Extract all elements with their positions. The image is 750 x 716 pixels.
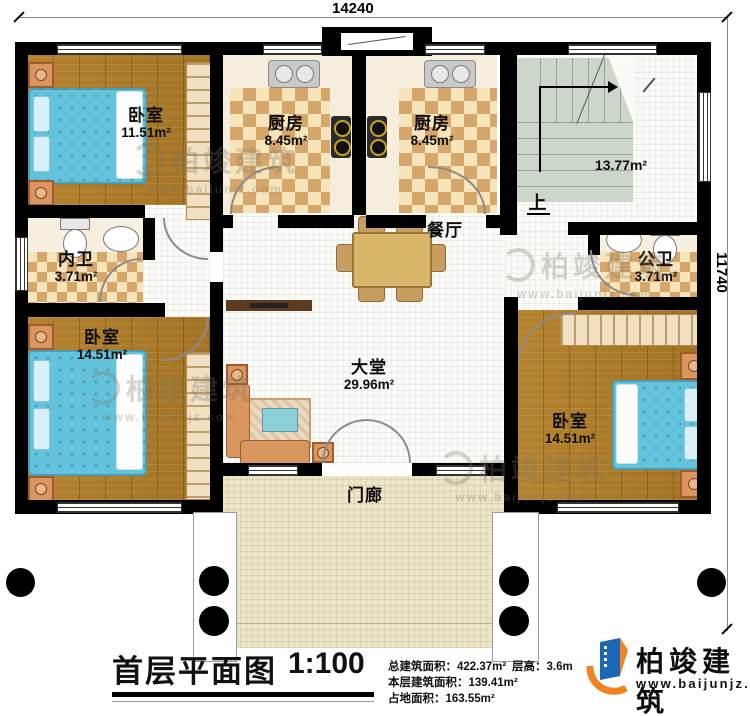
- bed-sheet-icon: [116, 354, 143, 470]
- pillow-icon: [33, 360, 50, 402]
- wall: [15, 303, 165, 317]
- wall: [578, 297, 711, 310]
- window: [248, 465, 298, 476]
- plan-scale: 1:100: [288, 647, 365, 681]
- porch-step-line: [222, 623, 508, 624]
- room-area: 14.51m²: [524, 431, 616, 446]
- wardrobe-icon: [186, 352, 212, 500]
- wardrobe-icon: [186, 62, 212, 220]
- wall: [210, 218, 223, 252]
- room-area: 8.45m²: [240, 133, 332, 148]
- floor-plan-canvas: 14240 11740: [0, 0, 750, 716]
- stair-guide-line: [540, 86, 610, 88]
- room-label-porch: 门廊: [322, 486, 408, 505]
- stair-guide-line: [539, 86, 541, 172]
- tv-icon: [250, 303, 288, 308]
- room-label-stair-hall: 13.77m²: [575, 158, 667, 174]
- room-area: 14.51m²: [56, 347, 148, 362]
- stat-floor-height: 层高：3.6m: [512, 658, 573, 674]
- room-name: 公卫: [616, 250, 696, 269]
- room-name: 内卫: [32, 250, 120, 269]
- top-dimension-label: 14240: [332, 0, 374, 17]
- side-table-icon: [226, 364, 248, 385]
- wall: [223, 215, 233, 228]
- room-name: 餐厅: [413, 221, 477, 240]
- title-underline-thin: [112, 701, 374, 702]
- room-area: 3.71m²: [616, 269, 696, 284]
- stove-icon: [331, 116, 351, 158]
- room-area: 29.96m²: [323, 377, 415, 392]
- bath-sink-icon: [103, 226, 139, 252]
- wall: [210, 282, 223, 512]
- room-name: 卧室: [524, 412, 616, 431]
- room-area: 8.45m²: [386, 133, 478, 148]
- room-label-bedroom-br: 卧室 14.51m²: [524, 412, 616, 446]
- room-label-hall: 大堂 29.96m²: [323, 358, 415, 392]
- company-logo-svg: [586, 636, 632, 696]
- window: [57, 502, 182, 513]
- wall: [278, 215, 354, 228]
- title-underline: [112, 692, 374, 697]
- column-icon: [499, 566, 529, 596]
- room-name: 门廊: [322, 486, 408, 505]
- room-label-dining: 餐厅: [413, 221, 477, 240]
- stat-total-area: 总建筑面积：422.37m²: [388, 658, 506, 674]
- room-label-inner-bath: 内卫 3.71m²: [32, 250, 120, 284]
- wall: [352, 55, 366, 215]
- stair-direction-arrow: [608, 81, 618, 93]
- column-icon: [697, 568, 726, 597]
- nightstand-icon: [28, 476, 54, 502]
- company-logo-website: www.baijunjz.com: [636, 676, 750, 691]
- room-label-kitchen-left: 厨房 8.45m²: [240, 114, 332, 148]
- window: [568, 44, 657, 55]
- window: [15, 237, 28, 291]
- room-name: 大堂: [323, 358, 415, 377]
- dining-table-icon: [352, 232, 432, 288]
- wall: [486, 215, 500, 228]
- stat-floor-area: 本层建筑面积：139.41m²: [388, 674, 518, 690]
- window: [425, 44, 485, 55]
- column-icon: [499, 606, 529, 636]
- kitchen-sink-icon: [268, 60, 320, 88]
- wall: [143, 218, 155, 260]
- room-name: 卧室: [100, 106, 192, 125]
- top-dimension-line: [20, 17, 728, 18]
- nightstand-icon: [28, 180, 54, 206]
- room-name: 卧室: [56, 328, 148, 347]
- window: [557, 502, 679, 513]
- window: [698, 92, 711, 182]
- wall: [500, 55, 517, 235]
- wall: [504, 297, 518, 513]
- column-icon: [199, 566, 229, 596]
- column-icon: [199, 606, 229, 636]
- wardrobe-icon: [560, 314, 702, 346]
- stair-up-label: 上: [523, 193, 553, 215]
- plan-title: 首层平面图: [112, 646, 277, 691]
- coffee-table-icon: [262, 408, 298, 432]
- room-area: 3.71m²: [32, 269, 120, 284]
- stove-icon: [367, 116, 387, 158]
- room-label-public-bath: 公卫 3.71m²: [616, 250, 696, 284]
- room-label-bedroom-tl: 卧室 11.51m²: [100, 106, 192, 140]
- wall: [568, 222, 711, 235]
- room-name: 厨房: [240, 114, 332, 133]
- room-name: 厨房: [386, 114, 478, 133]
- pillow-icon: [33, 96, 50, 132]
- pillow-icon: [33, 408, 50, 450]
- company-logo-icon: [586, 636, 632, 696]
- room-label-kitchen-right: 厨房 8.45m²: [386, 114, 478, 148]
- pillow-icon: [33, 136, 50, 172]
- room-area: 13.77m²: [575, 158, 667, 174]
- wall: [210, 55, 223, 218]
- window: [263, 44, 322, 55]
- window: [436, 465, 486, 476]
- nightstand-icon: [28, 62, 54, 88]
- wall: [15, 205, 145, 218]
- stat-footprint-area: 占地面积：163.55m²: [388, 690, 495, 706]
- column-icon: [6, 568, 35, 597]
- window: [57, 44, 182, 55]
- right-dimension-label: 11740: [713, 252, 730, 293]
- bed-sheet-icon: [616, 384, 638, 464]
- room-area: 11.51m²: [100, 125, 192, 140]
- nightstand-icon: [28, 324, 54, 350]
- room-label-bedroom-bl: 卧室 14.51m²: [56, 328, 148, 362]
- kitchen-sink-icon: [424, 60, 476, 88]
- right-dimension-line: [727, 17, 728, 631]
